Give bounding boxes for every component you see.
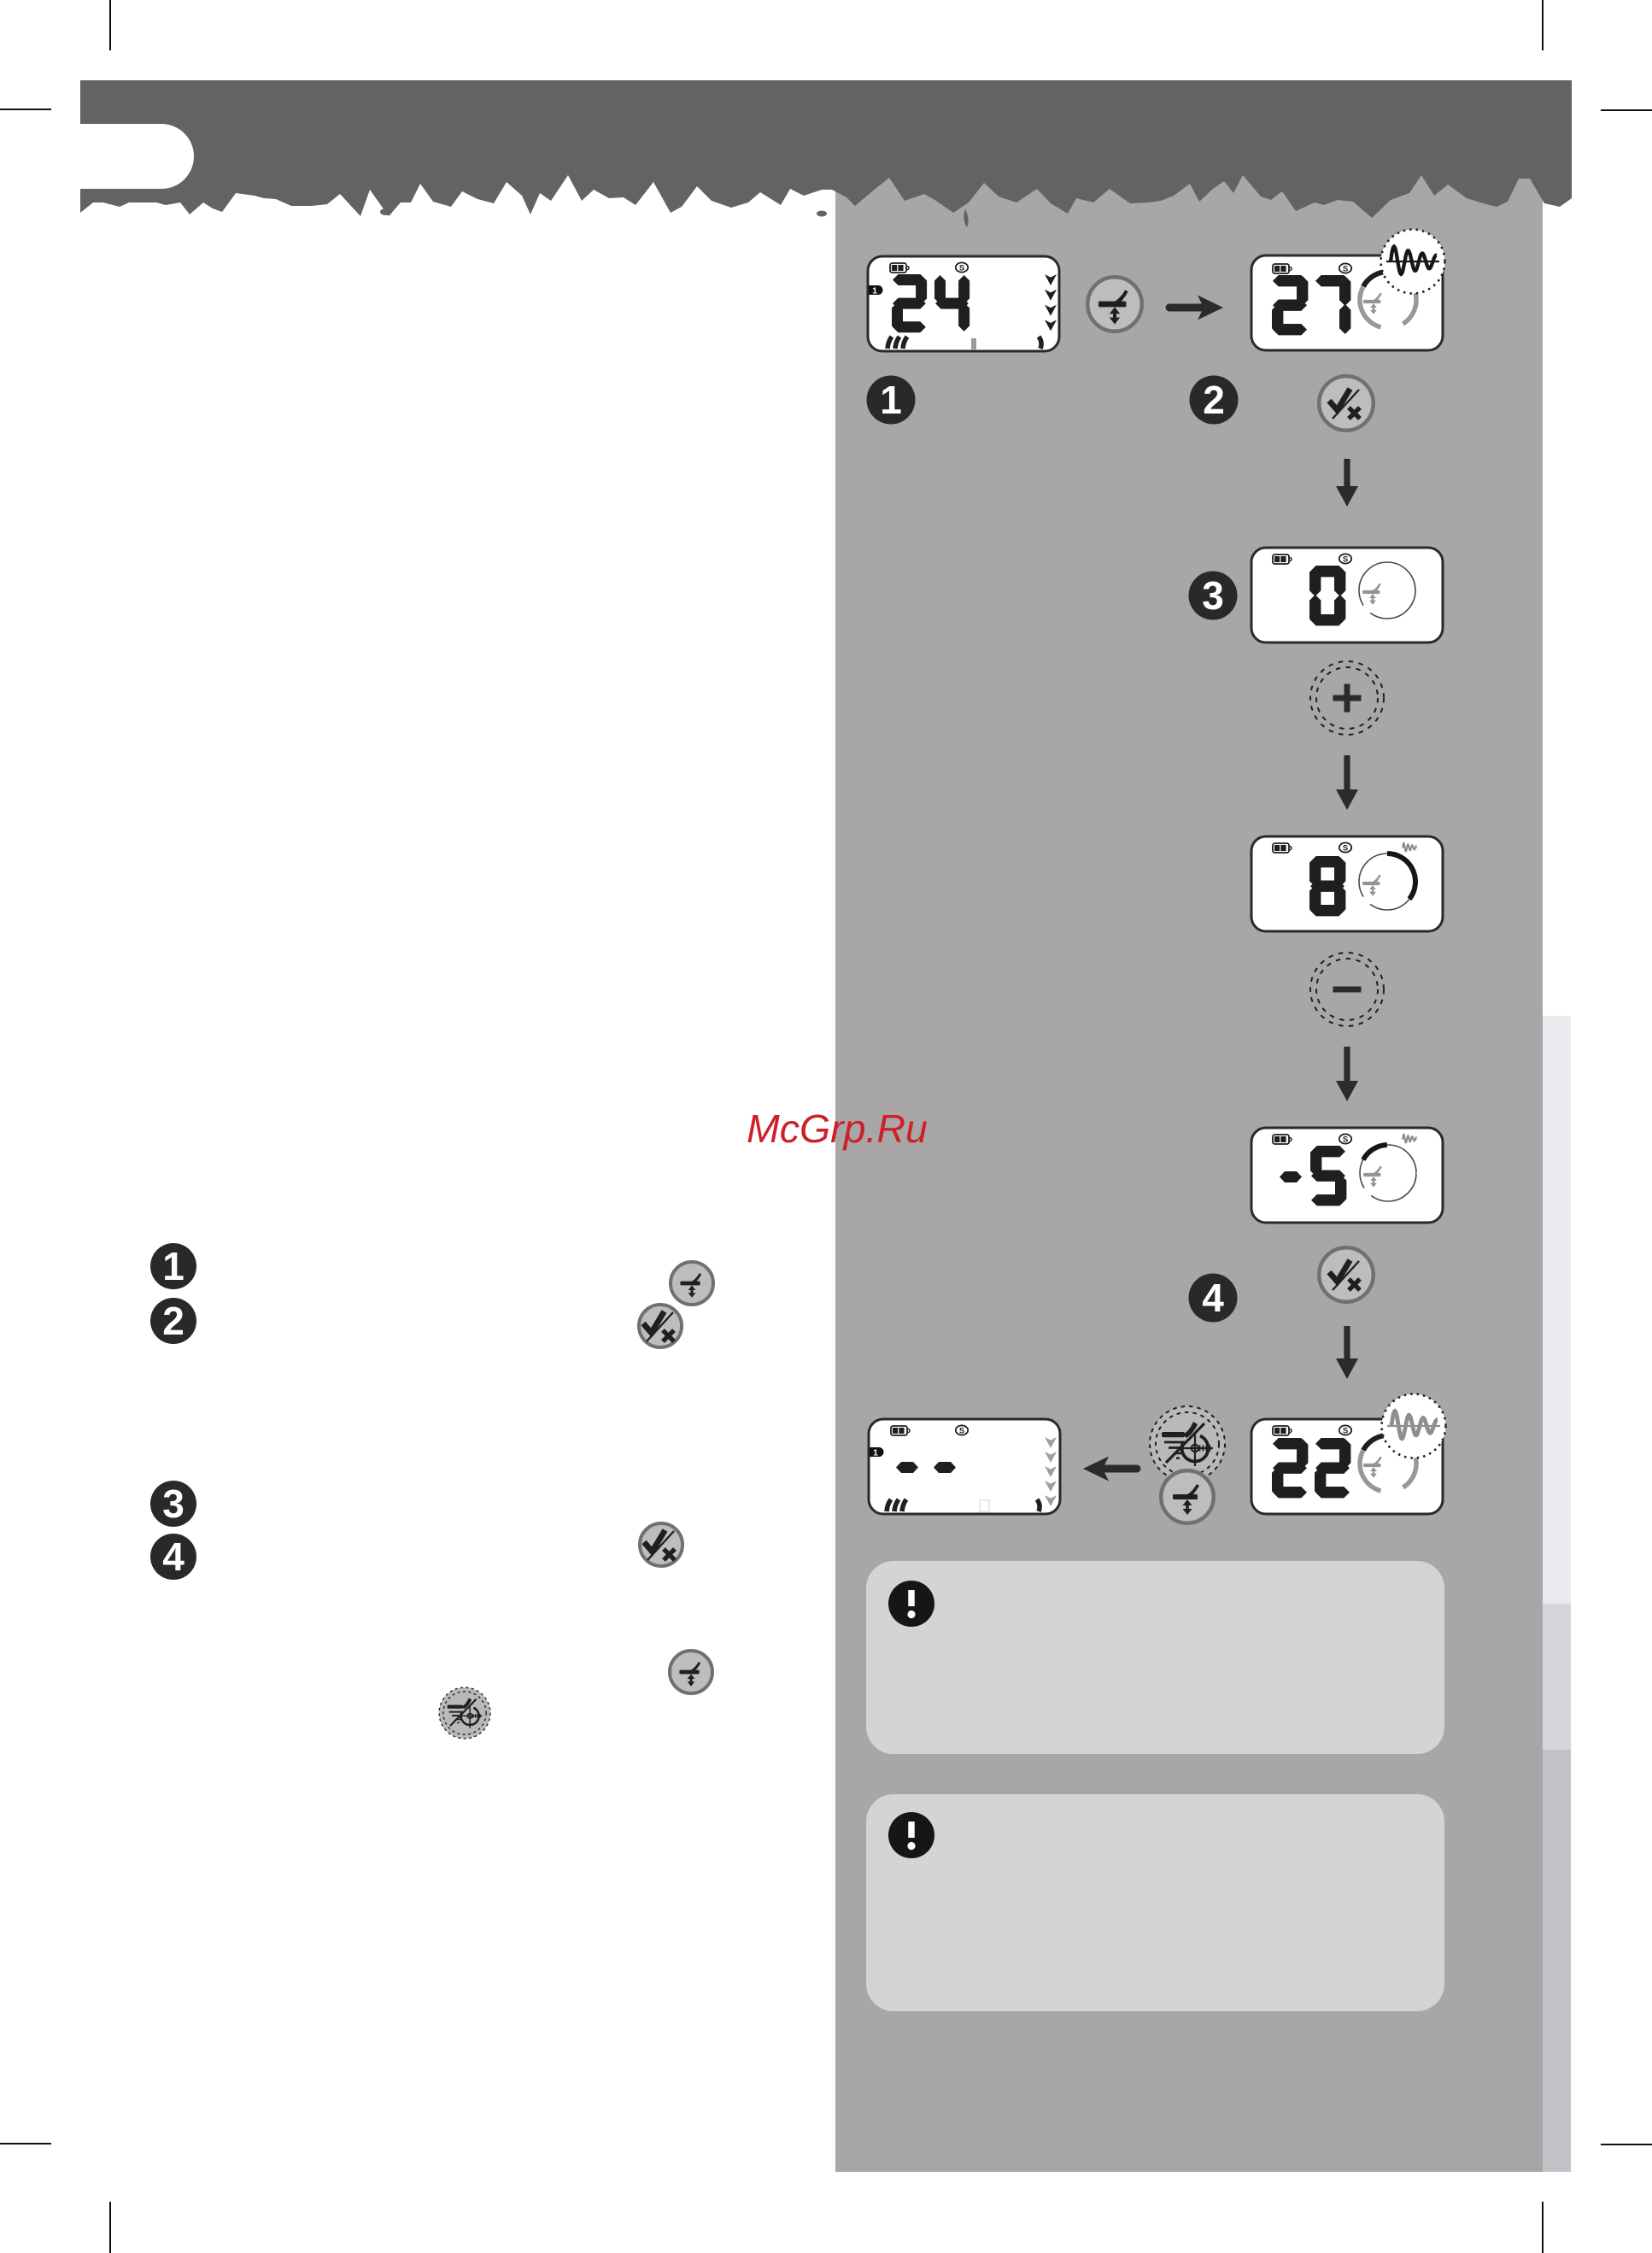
svg-text:S: S [1343,843,1348,853]
svg-text:1: 1 [872,285,877,296]
svg-text:S: S [1343,554,1348,564]
svg-text:4: 4 [162,1534,185,1579]
svg-text:S: S [1343,264,1348,273]
svg-text:2: 2 [1203,378,1225,422]
svg-text:S: S [959,1426,964,1435]
svg-text:S: S [1343,1426,1348,1435]
svg-text:S: S [959,263,964,273]
svg-text:3: 3 [1202,573,1224,618]
svg-text:McGrp.Ru: McGrp.Ru [747,1106,928,1151]
svg-text:3: 3 [162,1481,185,1526]
svg-text:1: 1 [873,1447,878,1458]
svg-text:2: 2 [162,1299,185,1343]
svg-text:4: 4 [1202,1276,1224,1320]
svg-text:1: 1 [880,378,902,422]
svg-text:1: 1 [162,1244,185,1288]
svg-text:S: S [1343,1135,1348,1144]
